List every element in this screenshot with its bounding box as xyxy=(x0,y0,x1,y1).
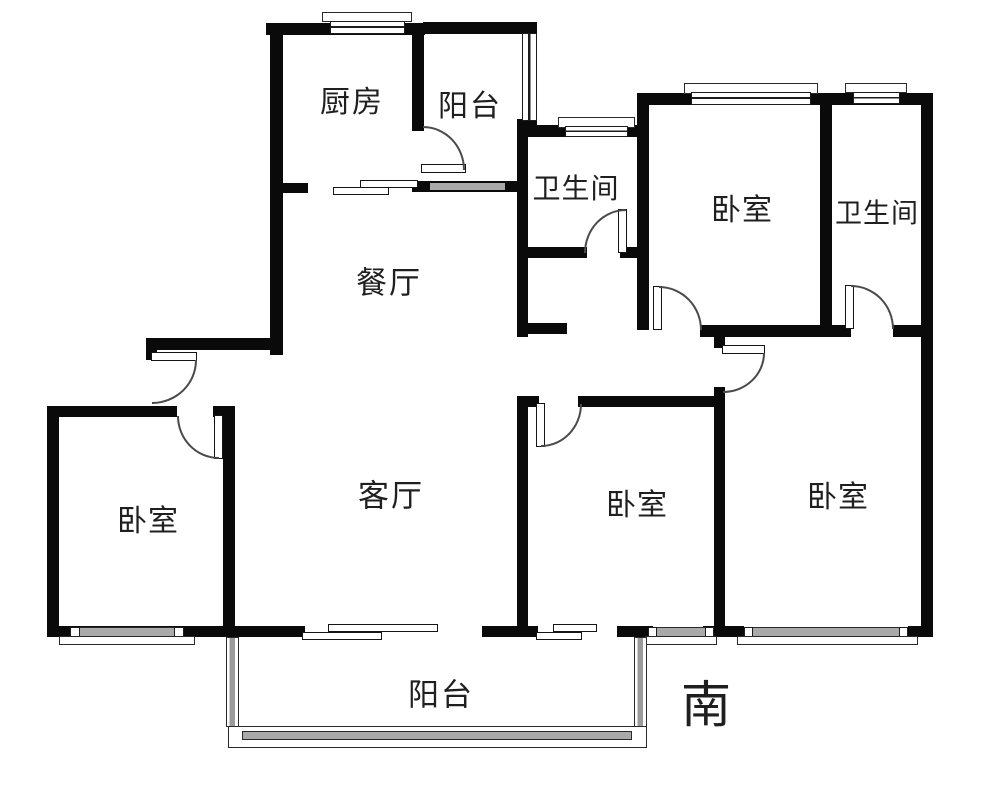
wall-kitchen-bottom-stub xyxy=(277,183,308,193)
wall-hall-stub xyxy=(517,323,567,334)
living-sliding-panel xyxy=(536,632,582,640)
bathroom-right-window xyxy=(853,92,900,104)
room-label-kitchen: 厨房 xyxy=(320,77,384,121)
bathroom-right-door-arc xyxy=(851,285,894,329)
window-sill xyxy=(59,636,195,645)
kitchen-balcony-door-arc xyxy=(423,126,465,170)
balcony-left-glass xyxy=(226,637,239,727)
wall-kitchen-right xyxy=(412,23,424,131)
wall-bedroom-top-bottom xyxy=(700,325,821,337)
wall-bathroom-middle-left xyxy=(517,125,528,337)
room-label-bedroom-top: 卧室 xyxy=(711,185,773,229)
balcony-top-side-window xyxy=(522,33,537,121)
wall-bedroom-left-top-a xyxy=(47,406,177,417)
wall-bedroom-center-left xyxy=(517,397,528,630)
balcony-front-glass xyxy=(242,731,632,740)
wall-bedroom-center-top-b xyxy=(578,396,725,407)
living-sliding-panel xyxy=(553,624,597,632)
wall-bathroom-middle-bottom-a xyxy=(517,247,587,258)
wall-balcony-top xyxy=(423,22,537,34)
room-label-balcony-top: 阳台 xyxy=(438,81,502,125)
wall-living-bottom-b xyxy=(482,626,538,637)
bathroom-middle-door-arc xyxy=(584,209,626,253)
wall-outer-left xyxy=(47,406,59,637)
bedroom-right-door-arc xyxy=(723,353,765,393)
room-label-dining: 餐厅 xyxy=(356,258,422,303)
kitchen-sliding-panel xyxy=(333,187,389,195)
living-sliding-panel xyxy=(328,624,438,632)
wall-bathroom-middle-right xyxy=(637,93,649,330)
balcony-wall-glass xyxy=(430,183,505,190)
bedroom-center-door-arc xyxy=(541,404,582,447)
entrance-door-arc xyxy=(152,360,197,404)
window-sill xyxy=(645,636,717,645)
kitchen-window xyxy=(330,21,405,34)
room-label-bedroom-right: 卧室 xyxy=(807,472,869,516)
room-label-bedroom-left: 卧室 xyxy=(117,496,179,540)
room-label-bathroom-right: 卫生间 xyxy=(835,192,919,231)
bathroom-middle-window xyxy=(565,126,628,137)
wall-bedrooms-divider xyxy=(714,387,725,637)
wall-bedroom-left-right xyxy=(223,406,235,632)
balcony-right-glass xyxy=(634,637,647,727)
bedroom-left-door-arc xyxy=(177,416,219,459)
wall-bathroom-right-bottom-b xyxy=(893,325,921,337)
room-label-bathroom-middle: 卫生间 xyxy=(532,167,619,207)
wall-entrance xyxy=(146,338,283,350)
wall-outer-right xyxy=(921,93,933,637)
living-sliding-panel xyxy=(302,632,382,640)
room-label-living: 客厅 xyxy=(358,471,424,516)
room-label-balcony-bottom: 阳台 xyxy=(408,670,474,715)
bedroom-top-window xyxy=(691,92,811,105)
wall-balcony-top-bottom xyxy=(412,181,520,192)
window-sill xyxy=(737,636,918,645)
wall-bedroom-bathroom-divider xyxy=(820,93,832,337)
compass-south-label: 南 xyxy=(681,665,731,737)
room-label-bedroom-center: 卧室 xyxy=(606,480,668,524)
wall-living-bottom-a xyxy=(184,626,305,637)
bedroom-top-door-arc xyxy=(659,286,702,330)
floor-plan-canvas: 厨房 阳台 卫生间 卧室 卫生间 餐厅 卧室 客厅 卧室 卧室 阳台 南 xyxy=(0,0,1000,797)
